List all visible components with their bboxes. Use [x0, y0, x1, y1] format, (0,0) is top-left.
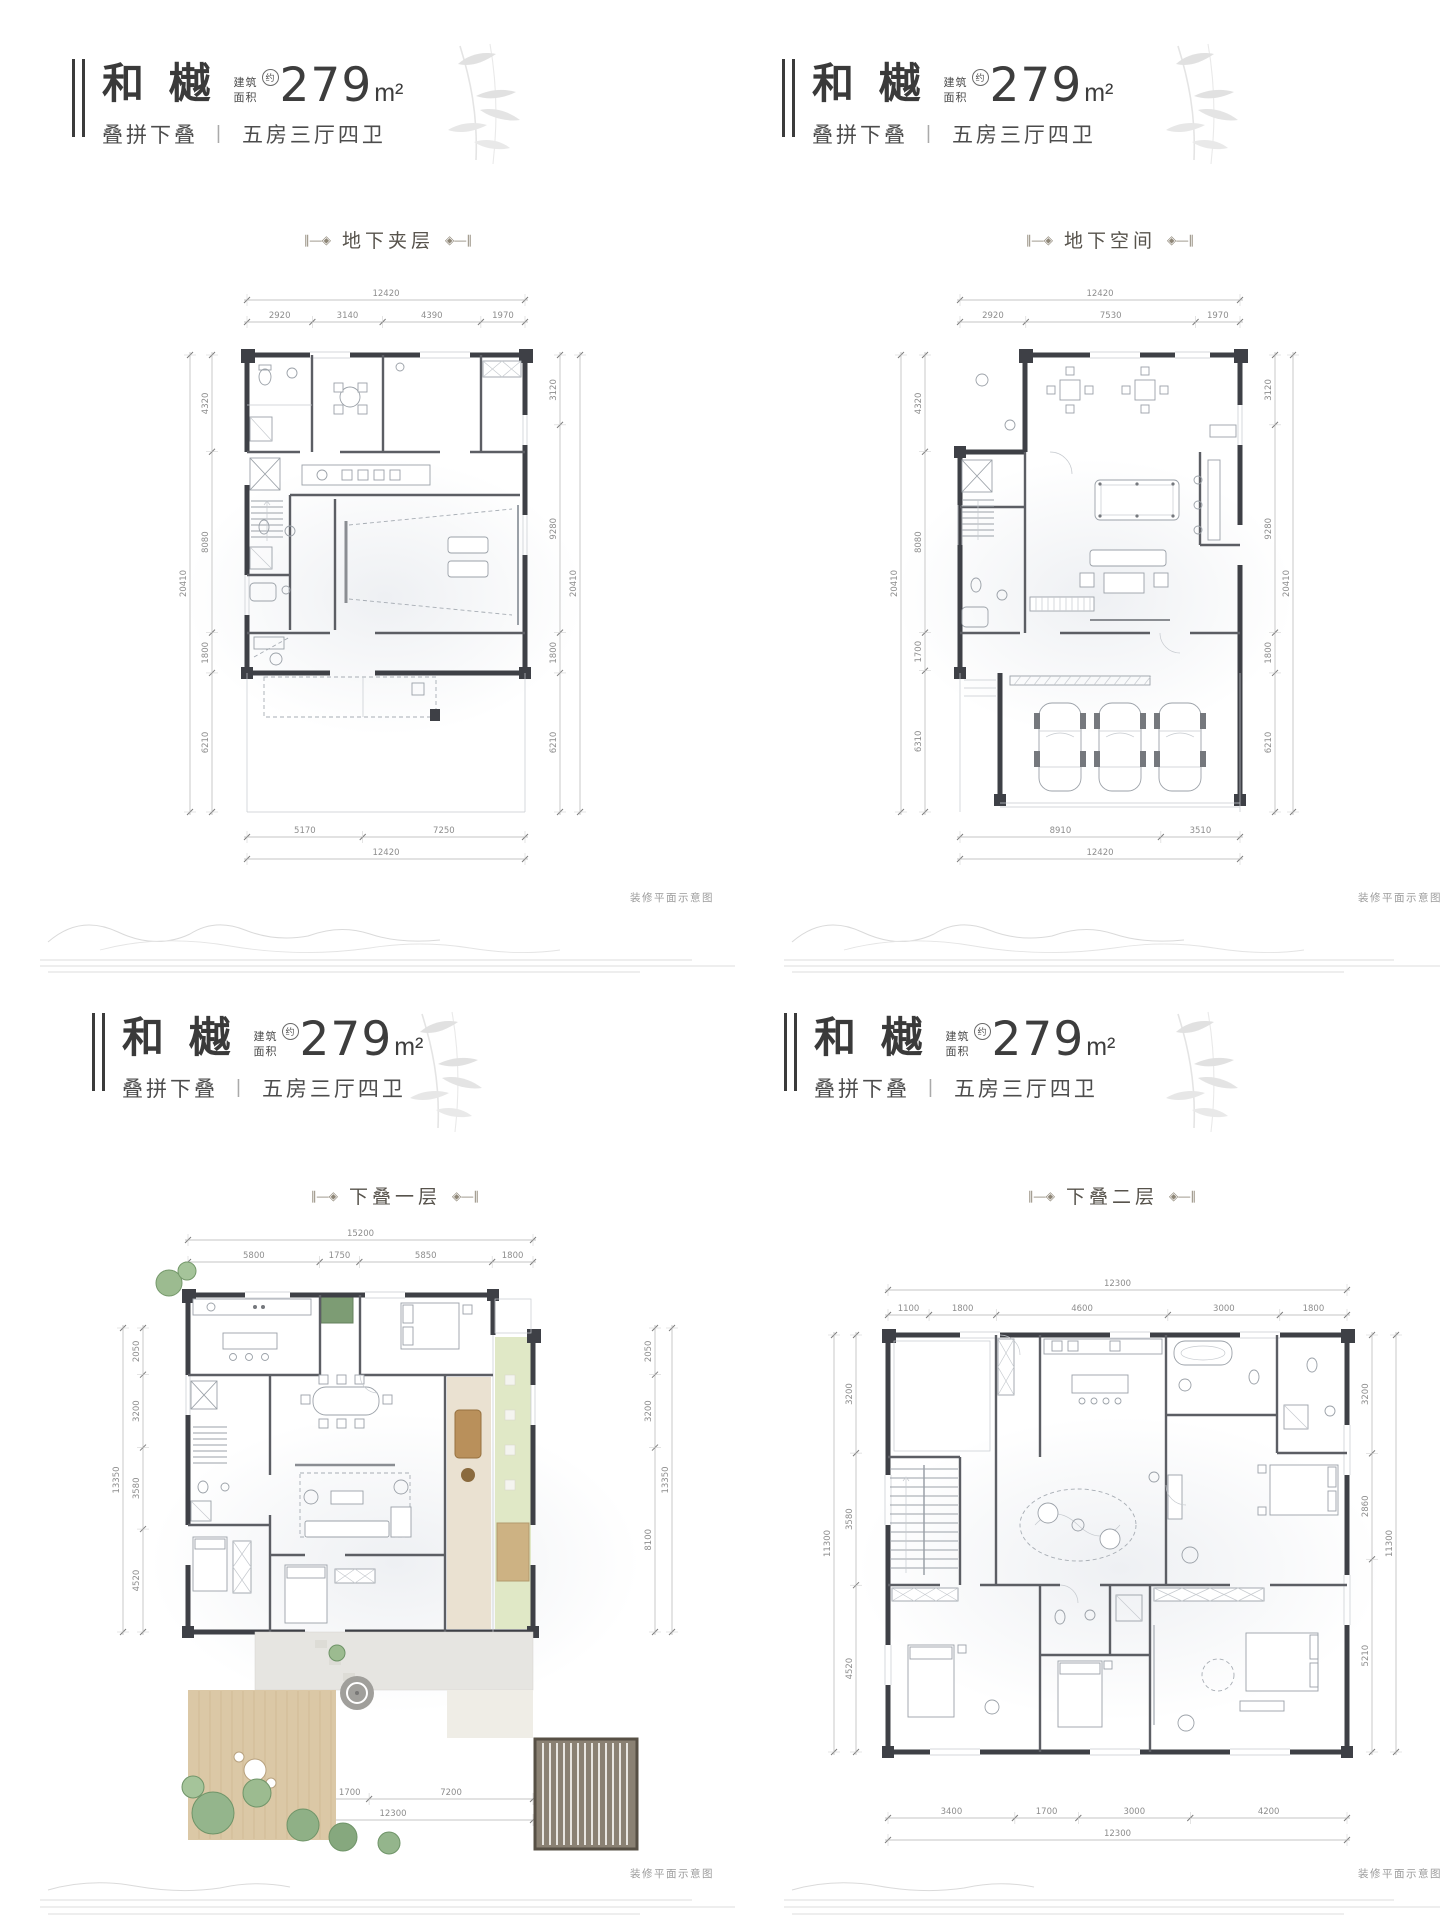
dim-chain: 11001800460030001800 — [885, 1304, 1350, 1321]
dim-chain: 20410 — [179, 352, 196, 815]
svg-text:12420: 12420 — [372, 289, 399, 299]
brand-name: 和 樾 — [102, 66, 218, 106]
dim-chain: 4320808017006310 — [914, 352, 931, 815]
dim-chain: 12300 — [885, 1279, 1350, 1296]
header-accent-bars — [784, 1013, 797, 1091]
header-accent-bars — [92, 1013, 105, 1091]
title-ornament-right: ◈—∥ — [1169, 1189, 1196, 1203]
svg-text:3200: 3200 — [644, 1400, 654, 1422]
svg-text:1700: 1700 — [339, 1788, 361, 1798]
dim-chain: 15200 — [185, 1229, 536, 1246]
area-unit: m² — [1086, 1034, 1115, 1060]
svg-text:3000: 3000 — [1213, 1304, 1235, 1314]
car-icon — [1034, 703, 1086, 791]
floorplan-basement-space: 12420 292075301970 20410 432080801700631… — [860, 285, 1330, 885]
svg-text:13350: 13350 — [661, 1466, 671, 1493]
unit-header-3: 和 樾 建筑面积 约 279 m² 叠拼下叠 | 五房三厅四卫 — [92, 1010, 423, 1103]
area-unit: m² — [374, 80, 403, 106]
svg-text:1800: 1800 — [952, 1304, 974, 1314]
car-icon — [1094, 703, 1146, 791]
svg-text:1970: 1970 — [1207, 311, 1229, 321]
svg-text:6210: 6210 — [201, 732, 211, 754]
unit-header-4: 和 樾 建筑面积 约 279 m² 叠拼下叠 | 五房三厅四卫 — [784, 1010, 1115, 1103]
svg-text:4600: 4600 — [1071, 1304, 1093, 1314]
dim-chain: 20410 — [1282, 352, 1299, 815]
area-value: 279 — [300, 1021, 393, 1060]
area-value: 279 — [280, 67, 373, 106]
svg-text:4200: 4200 — [1258, 1807, 1280, 1817]
approx-circle: 约 — [974, 1023, 991, 1040]
svg-text:3510: 3510 — [1190, 826, 1212, 836]
svg-text:1800: 1800 — [1264, 642, 1274, 664]
unit-header-1: 和 樾 建筑面积 约 279 m² 叠拼下叠 | 五房三厅四卫 — [72, 56, 403, 149]
brand-name: 和 樾 — [122, 1020, 238, 1060]
svg-text:7530: 7530 — [1100, 311, 1122, 321]
floorplan-lower-first-floor: 15200 5800175058501800 13350 20503200358… — [105, 1225, 685, 1875]
area-label: 建筑面积 — [944, 76, 968, 106]
room-config: 五房三厅四卫 — [954, 1073, 1098, 1103]
dim-chain: 12420 — [957, 848, 1243, 865]
svg-text:15200: 15200 — [347, 1229, 374, 1239]
dim-chain: 5800175058501800 — [185, 1251, 536, 1268]
title-ornament-left: ∥—◈ — [1028, 1189, 1055, 1203]
separator: | — [926, 123, 934, 145]
mountain-divider — [40, 898, 740, 978]
svg-text:8080: 8080 — [201, 531, 211, 553]
approx-circle: 约 — [282, 1023, 299, 1040]
svg-text:11300: 11300 — [823, 1530, 833, 1557]
dim-chain: 20410 — [569, 352, 586, 815]
svg-text:1800: 1800 — [201, 642, 211, 664]
title-ornament-left: ∥—◈ — [304, 233, 331, 247]
svg-text:7250: 7250 — [433, 826, 455, 836]
floorplan-brochure-page: 和 樾 建筑面积 约 279 m² 叠拼下叠 | 五房三厅四卫 和 樾 建筑面积… — [0, 0, 1440, 1920]
title-ornament-right: ◈—∥ — [445, 233, 472, 247]
svg-text:5800: 5800 — [243, 1251, 265, 1261]
approx-circle: 约 — [972, 69, 989, 86]
svg-text:12420: 12420 — [372, 848, 399, 858]
dim-chain: 292075301970 — [957, 311, 1243, 328]
svg-text:3580: 3580 — [132, 1477, 142, 1499]
unit-type: 叠拼下叠 — [814, 1073, 910, 1103]
dim-chain: 12300 — [885, 1829, 1350, 1846]
dim-chain: 89103510 — [957, 826, 1243, 843]
svg-text:4520: 4520 — [845, 1658, 855, 1680]
title-ornament-right: ◈—∥ — [452, 1189, 479, 1203]
header-accent-bars — [782, 59, 795, 137]
svg-text:12300: 12300 — [379, 1809, 406, 1819]
dim-chain: 12420 — [957, 289, 1243, 306]
svg-text:1700: 1700 — [914, 641, 924, 663]
dim-chain: 20410 — [890, 352, 907, 815]
svg-text:3120: 3120 — [1264, 379, 1274, 401]
room-config: 五房三厅四卫 — [242, 119, 386, 149]
bamboo-icon — [392, 1006, 492, 1136]
floor-plan-drawing — [882, 1329, 1355, 1758]
svg-text:12300: 12300 — [1104, 1279, 1131, 1289]
floor-plan-drawing — [241, 349, 533, 812]
floorplan-basement-mezzanine: 12420 2920314043901970 20410 43208080180… — [150, 285, 620, 885]
area-unit: m² — [1084, 80, 1113, 106]
bamboo-icon — [1148, 1006, 1248, 1136]
approx-circle: 约 — [262, 69, 279, 86]
dim-chain: 3120928018006210 — [1264, 352, 1281, 815]
dim-chain: 2920314043901970 — [244, 311, 528, 328]
title-ornament-left: ∥—◈ — [1026, 233, 1053, 247]
separator: | — [928, 1077, 936, 1099]
plan-title-lower-second-floor: ∥—◈ 下叠二层 ◈—∥ — [1017, 1182, 1207, 1209]
svg-text:6310: 6310 — [914, 731, 924, 753]
svg-text:1800: 1800 — [502, 1251, 524, 1261]
svg-text:5170: 5170 — [294, 826, 316, 836]
svg-text:4390: 4390 — [421, 311, 443, 321]
svg-text:4320: 4320 — [914, 393, 924, 415]
svg-text:3400: 3400 — [941, 1807, 963, 1817]
plan-title-lower-first-floor: ∥—◈ 下叠一层 ◈—∥ — [300, 1182, 490, 1209]
svg-text:13350: 13350 — [112, 1466, 122, 1493]
svg-text:3200: 3200 — [845, 1383, 855, 1405]
svg-text:3140: 3140 — [337, 311, 359, 321]
svg-text:5850: 5850 — [415, 1251, 437, 1261]
room-config: 五房三厅四卫 — [262, 1073, 406, 1103]
car-icon — [1154, 703, 1206, 791]
dim-chain: 2050320035804520 — [132, 1325, 149, 1635]
svg-text:3120: 3120 — [549, 379, 559, 401]
floor-plan-drawing — [156, 1262, 637, 1854]
svg-text:9280: 9280 — [1264, 518, 1274, 540]
dim-chain: 51707250 — [244, 826, 528, 843]
dim-chain: 13350 — [112, 1325, 129, 1635]
svg-text:7200: 7200 — [440, 1788, 462, 1798]
dim-chain: 12420 — [244, 848, 528, 865]
svg-text:8080: 8080 — [914, 531, 924, 553]
dim-chain: 12420 — [244, 289, 528, 306]
area-label: 建筑面积 — [234, 76, 258, 106]
svg-text:2050: 2050 — [132, 1341, 142, 1363]
svg-text:1100: 1100 — [898, 1304, 920, 1314]
header-accent-bars — [72, 59, 85, 137]
svg-text:3200: 3200 — [132, 1400, 142, 1422]
svg-text:4320: 4320 — [201, 393, 211, 415]
area-label: 建筑面积 — [946, 1030, 970, 1060]
svg-text:1800: 1800 — [549, 642, 559, 664]
bamboo-icon — [430, 38, 530, 168]
svg-text:20410: 20410 — [1282, 570, 1292, 597]
mountain-divider — [784, 1878, 1440, 1920]
svg-text:12300: 12300 — [1104, 1829, 1131, 1839]
svg-text:5210: 5210 — [1361, 1645, 1371, 1667]
separator: | — [216, 123, 224, 145]
svg-text:12420: 12420 — [1086, 848, 1113, 858]
brand-name: 和 樾 — [812, 66, 928, 106]
svg-text:1970: 1970 — [492, 311, 514, 321]
mountain-divider — [40, 1878, 740, 1920]
dim-chain: 320028605210 — [1361, 1332, 1378, 1755]
brand-name: 和 樾 — [814, 1020, 930, 1060]
dim-chain: 11300 — [1385, 1332, 1402, 1755]
area-label: 建筑面积 — [254, 1030, 278, 1060]
svg-text:1800: 1800 — [1303, 1304, 1325, 1314]
svg-text:8100: 8100 — [644, 1529, 654, 1551]
svg-text:6210: 6210 — [1264, 732, 1274, 754]
svg-text:6210: 6210 — [549, 732, 559, 754]
svg-text:2920: 2920 — [982, 311, 1004, 321]
floor-plan-drawing — [954, 349, 1248, 812]
svg-text:12420: 12420 — [1086, 289, 1113, 299]
room-config: 五房三厅四卫 — [952, 119, 1096, 149]
svg-text:3000: 3000 — [1123, 1807, 1145, 1817]
svg-text:2860: 2860 — [1361, 1495, 1371, 1517]
unit-type: 叠拼下叠 — [122, 1073, 218, 1103]
svg-text:1700: 1700 — [1036, 1807, 1058, 1817]
dim-chain: 3400170030004200 — [885, 1807, 1350, 1824]
svg-text:4520: 4520 — [132, 1570, 142, 1592]
svg-text:3580: 3580 — [845, 1508, 855, 1530]
svg-text:2920: 2920 — [269, 311, 291, 321]
dim-chain: 11300 — [823, 1332, 840, 1755]
svg-text:3200: 3200 — [1361, 1383, 1371, 1405]
title-ornament-right: ◈—∥ — [1167, 233, 1194, 247]
svg-text:20410: 20410 — [890, 570, 900, 597]
mountain-divider — [784, 898, 1440, 978]
title-ornament-left: ∥—◈ — [311, 1189, 338, 1203]
svg-text:2050: 2050 — [644, 1341, 654, 1363]
svg-text:11300: 11300 — [1385, 1530, 1395, 1557]
svg-text:20410: 20410 — [179, 570, 189, 597]
area-value: 279 — [992, 1021, 1085, 1060]
svg-text:1750: 1750 — [329, 1251, 351, 1261]
svg-text:9280: 9280 — [549, 518, 559, 540]
dim-chain: 205032008100 — [644, 1325, 661, 1635]
unit-header-2: 和 樾 建筑面积 约 279 m² 叠拼下叠 | 五房三厅四卫 — [782, 56, 1113, 149]
separator: | — [236, 1077, 244, 1099]
dim-chain: 3120928018006210 — [549, 352, 566, 815]
svg-text:8910: 8910 — [1050, 826, 1072, 836]
dim-chain: 4320808018006210 — [201, 352, 218, 815]
dim-chain: 320035804520 — [845, 1332, 862, 1755]
svg-text:20410: 20410 — [569, 570, 579, 597]
area-value: 279 — [990, 67, 1083, 106]
plan-title-basement-mezzanine: ∥—◈ 地下夹层 ◈—∥ — [293, 226, 483, 253]
floorplan-lower-second-floor: 12300 11001800460030001800 11300 3200358… — [810, 1225, 1430, 1885]
unit-type: 叠拼下叠 — [812, 119, 908, 149]
plan-title-basement-space: ∥—◈ 地下空间 ◈—∥ — [1015, 226, 1205, 253]
bamboo-icon — [1148, 38, 1248, 168]
dim-chain: 13350 — [661, 1325, 678, 1635]
unit-type: 叠拼下叠 — [102, 119, 198, 149]
